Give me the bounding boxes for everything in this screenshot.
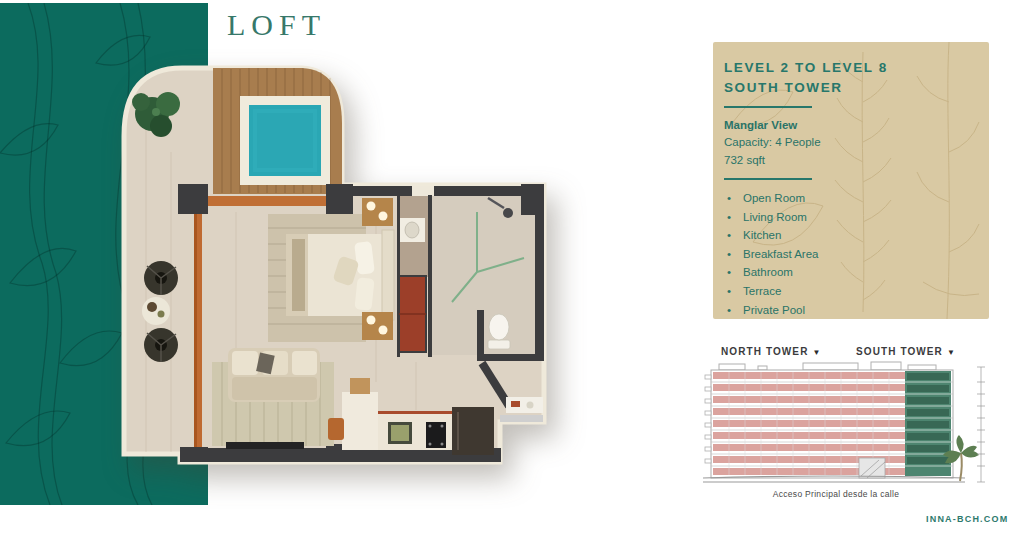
tv — [226, 442, 304, 449]
floor-plan — [116, 62, 548, 494]
bullet-icon: • — [724, 301, 743, 319]
tower-name: SOUTH TOWER — [724, 78, 975, 98]
capacity: Capacity: 4 People — [724, 134, 975, 151]
elevation-caption: Acceso Principal desde la calle — [731, 489, 941, 499]
sofa — [228, 348, 320, 402]
south-tower-highlight — [905, 371, 951, 476]
info-panel: LEVEL 2 TO LEVEL 8 SOUTH TOWER Manglar V… — [713, 42, 989, 319]
south-tower-text: SOUTH TOWER — [856, 346, 943, 357]
bullet-icon: • — [724, 208, 743, 227]
balcony-ticks — [705, 375, 711, 463]
divider — [724, 178, 812, 180]
north-tower-text: NORTH TOWER — [721, 346, 808, 357]
view-name: Manglar View — [724, 117, 975, 134]
toilet — [488, 314, 510, 349]
feature-label: Bathroom — [743, 263, 793, 282]
bullet-icon: • — [724, 189, 743, 208]
wardrobe — [399, 276, 426, 352]
building-elevation: NORTH TOWER▼ SOUTH TOWER▼ — [703, 346, 993, 512]
feature-item: •Kitchen — [724, 226, 975, 245]
bullet-icon: • — [724, 263, 743, 282]
rooftop — [719, 362, 936, 370]
divider — [724, 106, 812, 108]
feature-item: •Bathroom — [724, 263, 975, 282]
feature-label: Terrace — [743, 282, 781, 301]
vanity — [400, 218, 425, 242]
down-triangle-icon: ▼ — [947, 348, 956, 357]
south-tower-label: SOUTH TOWER▼ — [856, 346, 956, 357]
feature-item: •Living Room — [724, 208, 975, 227]
bed — [286, 230, 394, 320]
entry-console — [500, 397, 543, 422]
down-triangle-icon: ▼ — [812, 348, 821, 357]
area: 732 sqft — [724, 152, 975, 169]
feature-list: •Open Room •Living Room •Kitchen •Breakf… — [724, 189, 975, 319]
elevation-drawing — [703, 361, 993, 489]
bullet-icon: • — [724, 245, 743, 264]
feature-item: •Private Pool — [724, 301, 975, 319]
bullet-icon: • — [724, 282, 743, 301]
level-range: LEVEL 2 TO LEVEL 8 — [724, 58, 975, 78]
plan-title: LOFT — [227, 8, 326, 42]
entrance — [859, 458, 885, 478]
brochure-page: LOFT — [0, 0, 1024, 541]
website-link[interactable]: INNA-BCH.COM — [926, 514, 1008, 524]
feature-item: •Breakfast Area — [724, 245, 975, 264]
plunge-pool — [240, 96, 330, 185]
feature-item: •Open Room — [724, 189, 975, 208]
feature-label: Breakfast Area — [743, 245, 818, 264]
feature-label: Private Pool — [743, 301, 805, 319]
north-tower-label: NORTH TOWER▼ — [721, 346, 822, 357]
bullet-icon: • — [724, 226, 743, 245]
feature-item: •Terrace — [724, 282, 975, 301]
feature-label: Open Room — [743, 189, 805, 208]
feature-label: Kitchen — [743, 226, 781, 245]
feature-label: Living Room — [743, 208, 807, 227]
dimension-line — [977, 367, 985, 482]
